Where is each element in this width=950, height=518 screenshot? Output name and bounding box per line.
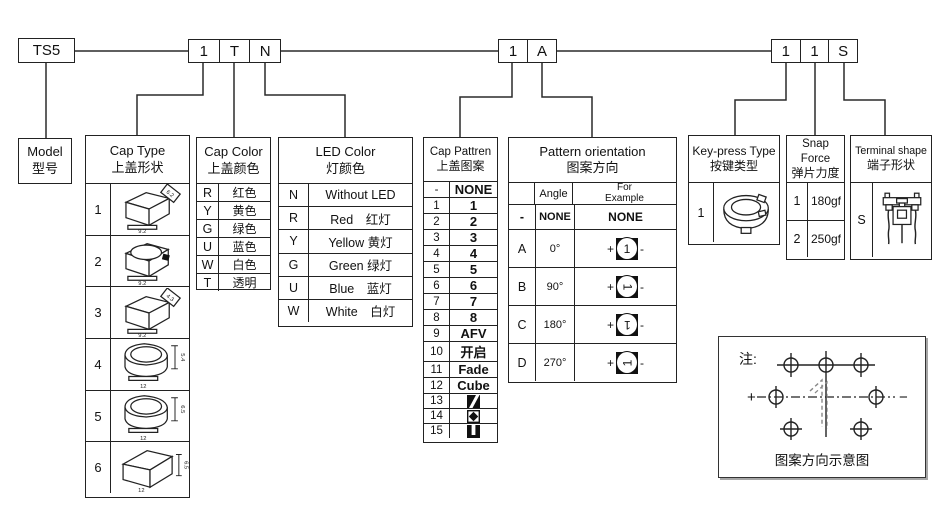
pattern-example-180deg-icon: 1 bbox=[616, 314, 638, 336]
led-color-title-zh: 灯颜色 bbox=[326, 161, 365, 177]
svg-text:6.5: 6.5 bbox=[183, 461, 189, 469]
model-title-zh: 型号 bbox=[32, 161, 58, 178]
cap-color-title-zh: 上盖颜色 bbox=[207, 161, 259, 177]
svg-text:+: + bbox=[747, 389, 756, 406]
col-for-example: For Example bbox=[573, 183, 676, 204]
code-cap-type: 1 bbox=[189, 40, 219, 62]
section-cap-pattern: Cap Pattren 上盖图案 -NONE 11 22 33 44 55 66… bbox=[423, 137, 498, 443]
led-color-row: RRed 红灯 bbox=[279, 206, 412, 229]
cap-type-row: 1 6.2 9.2 bbox=[86, 184, 189, 235]
pattern-example-90deg-icon: 1 bbox=[616, 276, 638, 298]
led-color-row: GGreen 绿灯 bbox=[279, 253, 412, 276]
section-key-press: Key-press Type 按键类型 1 bbox=[688, 135, 780, 245]
svg-text:−: − bbox=[899, 389, 908, 406]
section-pattern-orientation: Pattern orientation 图案方向 Angle For Examp… bbox=[508, 137, 677, 383]
led-color-title-en: LED Color bbox=[316, 144, 376, 160]
vertical-bar-icon bbox=[450, 424, 497, 438]
svg-text:12: 12 bbox=[140, 436, 146, 441]
snap-force-title-zh: 弹片力度 bbox=[791, 166, 839, 181]
cap-pattern-row: 88 bbox=[424, 309, 497, 325]
col-angle: Angle bbox=[535, 183, 573, 204]
terminal-title-zh: 端子形状 bbox=[867, 158, 915, 173]
key-press-row: 1 bbox=[689, 183, 779, 242]
cap-color-title-en: Cap Color bbox=[204, 144, 263, 160]
led-color-row: WWhite 白灯 bbox=[279, 299, 412, 322]
cap-type-2-drawing-icon: 9.2 bbox=[111, 236, 189, 287]
svg-text:9.2: 9.2 bbox=[138, 333, 146, 338]
cap-pattern-row: 22 bbox=[424, 213, 497, 229]
cap-pattern-row: 10开启 bbox=[424, 341, 497, 361]
cap-type-row: 5 6.5 12 bbox=[86, 390, 189, 442]
model-title-en: Model bbox=[27, 144, 62, 161]
code-cap-color: T bbox=[219, 40, 250, 62]
cap-type-1-drawing-icon: 6.2 9.2 bbox=[111, 184, 189, 235]
svg-text:12: 12 bbox=[140, 384, 146, 389]
pattern-orientation-row-none: - NONE NONE bbox=[509, 205, 676, 229]
cap-pattern-row: 13 bbox=[424, 393, 497, 408]
cap-type-6-drawing-icon: 6.5 12 bbox=[111, 442, 189, 493]
cap-type-row: 4 5.4 12 bbox=[86, 338, 189, 390]
code-keypress: 1 bbox=[772, 40, 800, 62]
code-box-group1: 1 T N bbox=[188, 39, 281, 63]
ordering-code-diagram: TS5 1 T N 1 A 1 1 S Model 型号 Cap Type 上盖… bbox=[0, 0, 950, 518]
code-snap-force: 1 bbox=[800, 40, 829, 62]
svg-text:6.5: 6.5 bbox=[179, 405, 185, 413]
cap-pattern-row: 66 bbox=[424, 277, 497, 293]
cap-type-row: 6 6.5 12 bbox=[86, 441, 189, 493]
cap-pattern-row: 14 bbox=[424, 408, 497, 423]
cap-pattern-title-zh: 上盖图案 bbox=[436, 159, 484, 174]
cap-type-3-drawing-icon: 4.3 9.2 bbox=[111, 287, 189, 338]
key-press-cap-drawing-icon bbox=[714, 183, 779, 242]
note-caption: 图案方向示意图 bbox=[719, 449, 925, 469]
pattern-orientation-row: C 180° + 1 - bbox=[509, 305, 676, 343]
terminal-row: S bbox=[851, 183, 931, 257]
cap-pattern-row: 9AFV bbox=[424, 325, 497, 341]
cap-pattern-row: 77 bbox=[424, 293, 497, 309]
key-press-title-en: Key-press Type bbox=[692, 144, 775, 159]
cap-type-row: 3 4.3 9.2 bbox=[86, 286, 189, 338]
code-box-group3: 1 1 S bbox=[771, 39, 858, 63]
cap-color-row: G绿色 bbox=[197, 219, 270, 237]
pattern-orientation-row: D 270° + 1 - bbox=[509, 343, 676, 381]
cap-color-row: U蓝色 bbox=[197, 237, 270, 255]
svg-text:5.4: 5.4 bbox=[179, 354, 185, 363]
cap-type-5-drawing-icon: 6.5 12 bbox=[111, 391, 189, 442]
diagonal-stripe-icon bbox=[450, 394, 497, 408]
pattern-orientation-title-en: Pattern orientation bbox=[539, 144, 645, 160]
svg-text:9.2: 9.2 bbox=[138, 281, 146, 286]
led-color-row: UBlue 蓝灯 bbox=[279, 276, 412, 299]
code-box-model: TS5 bbox=[18, 38, 75, 63]
cap-pattern-row: -NONE bbox=[424, 182, 497, 197]
svg-text:9.2: 9.2 bbox=[138, 229, 146, 234]
code-led-color: N bbox=[249, 40, 280, 62]
section-led-color: LED Color 灯颜色 NWithout LED RRed 红灯 YYell… bbox=[278, 137, 413, 327]
cap-color-row: T透明 bbox=[197, 273, 270, 291]
led-color-row: NWithout LED bbox=[279, 184, 412, 206]
pattern-orientation-row: B 90° + 1 - bbox=[509, 267, 676, 305]
code-model: TS5 bbox=[19, 39, 74, 62]
section-snap-force: Snap Force 弹片力度 1180gf 2250gf bbox=[786, 135, 845, 260]
cap-type-title-zh: 上盖形状 bbox=[111, 160, 163, 176]
code-pattern-orientation: A bbox=[527, 40, 556, 62]
cap-pattern-row: 55 bbox=[424, 261, 497, 277]
pattern-example-270deg-icon: 1 bbox=[616, 352, 638, 374]
section-terminal-shape: Terminal shape 端子形状 S bbox=[850, 135, 932, 260]
code-cap-pattern: 1 bbox=[499, 40, 527, 62]
section-cap-color: Cap Color 上盖颜色 R红色 Y黄色 G绿色 U蓝色 W白色 T透明 bbox=[196, 137, 271, 290]
cap-pattern-row: 15 bbox=[424, 423, 497, 438]
section-model: Model 型号 bbox=[18, 138, 72, 184]
pattern-orientation-subheader: Angle For Example bbox=[509, 183, 676, 205]
pattern-direction-diagram: + − bbox=[733, 347, 913, 445]
cap-color-row: R红色 bbox=[197, 184, 270, 201]
cap-pattern-row: 11Fade bbox=[424, 361, 497, 377]
terminal-switch-drawing-icon bbox=[873, 183, 931, 257]
cap-pattern-title-en: Cap Pattren bbox=[430, 145, 491, 159]
note-box: 注: + − 图案方向示意图 bbox=[718, 336, 926, 478]
svg-text:12: 12 bbox=[138, 488, 144, 493]
section-cap-type: Cap Type 上盖形状 1 6.2 9.2 bbox=[85, 135, 190, 498]
cap-pattern-row: 11 bbox=[424, 197, 497, 213]
code-terminal: S bbox=[828, 40, 857, 62]
key-press-title-zh: 按键类型 bbox=[710, 159, 758, 174]
cap-color-row: W白色 bbox=[197, 255, 270, 273]
led-color-row: YYellow 黄灯 bbox=[279, 229, 412, 252]
cap-type-4-drawing-icon: 5.4 12 bbox=[111, 339, 189, 390]
cap-pattern-row: 33 bbox=[424, 229, 497, 245]
code-box-group2: 1 A bbox=[498, 39, 557, 63]
terminal-title-en: Terminal shape bbox=[855, 145, 927, 158]
snap-force-row: 1180gf bbox=[787, 183, 844, 220]
diamond-icon bbox=[450, 409, 497, 423]
cap-color-row: Y黄色 bbox=[197, 201, 270, 219]
pattern-orientation-title-zh: 图案方向 bbox=[566, 160, 618, 176]
snap-force-title-en: Snap Force bbox=[787, 137, 844, 166]
cap-type-title-en: Cap Type bbox=[110, 143, 165, 159]
snap-force-row: 2250gf bbox=[787, 220, 844, 258]
cap-pattern-row: 12Cube bbox=[424, 377, 497, 393]
pattern-orientation-row: A 0° + 1 - bbox=[509, 230, 676, 267]
cap-pattern-row: 44 bbox=[424, 245, 497, 261]
pattern-example-0deg-icon: 1 bbox=[616, 238, 638, 260]
cap-type-row: 2 9.2 bbox=[86, 235, 189, 287]
